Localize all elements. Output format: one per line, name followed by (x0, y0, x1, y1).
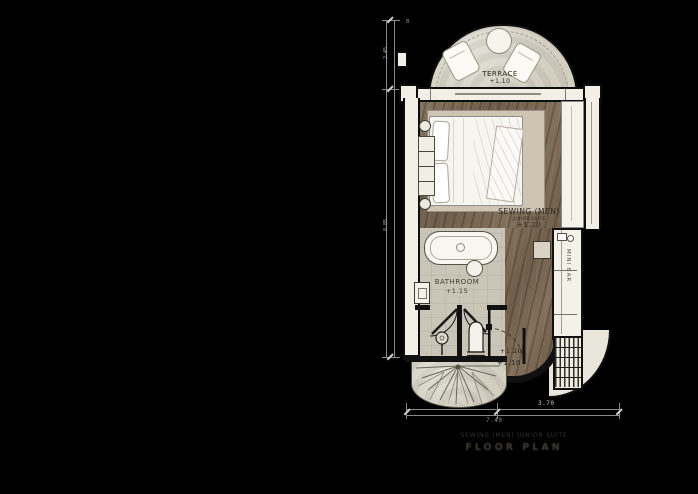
bedside-console (418, 136, 435, 196)
console-divider (419, 166, 434, 167)
toilet-icon (469, 322, 483, 352)
room-label: SEWING (MEN) (488, 207, 570, 216)
console-divider (419, 151, 434, 152)
chair-fold-line (518, 52, 533, 61)
door-leaf (432, 309, 457, 334)
left-dimension-tick-mid (382, 89, 400, 90)
stairs-icon (553, 336, 583, 390)
bottom-dimension-line-lower (406, 415, 620, 416)
basin-icon (466, 260, 483, 277)
bathroom-level: +1.15 (422, 287, 492, 295)
stair-step (555, 348, 581, 358)
left-dimension-end-bottom (382, 357, 400, 358)
bottom-dim-value-1: 3.70 (438, 400, 454, 407)
door-jamb (486, 324, 492, 330)
left-dim-value-1: 2.45 (383, 47, 389, 59)
bottom-dim-total: 7.40 (486, 417, 502, 424)
caption-line-2: FLOOR PLAN (400, 442, 628, 453)
bathroom-label: BATHROOM (422, 278, 492, 286)
palm-trunk (456, 365, 461, 370)
entry-level-lower: +1.10 (490, 359, 528, 367)
bathtub-drain (456, 243, 465, 252)
stair-step (555, 358, 581, 368)
top-wall (403, 87, 600, 102)
chair-fold-line (449, 50, 464, 59)
window-seat-line (571, 106, 572, 221)
bottom-dim-value-2: 3.70 (538, 400, 554, 407)
lamp-icon (419, 120, 431, 132)
caption-line-1: SEWING (MEN) JUNIOR SUITE (408, 432, 620, 439)
floor-plan-canvas: 2.45 8.85 B TERRACE +1.10 (0, 0, 698, 494)
grid-marker: B (406, 19, 409, 25)
right-wall (584, 98, 601, 229)
cup-icon (567, 235, 574, 242)
kettle-icon (557, 233, 567, 241)
door-mullion (457, 305, 462, 356)
counter-divider (554, 314, 577, 315)
sheet-line (463, 119, 464, 203)
terrace-label: TERRACE (468, 70, 532, 78)
shower-icon (436, 332, 448, 344)
left-dimension-line-inner (394, 20, 395, 358)
exterior-post (397, 52, 407, 67)
minibar-label: MINI BAR (557, 244, 571, 288)
window-inner-line (591, 102, 592, 224)
left-dimension-line-outer (386, 20, 387, 358)
bed (429, 116, 523, 206)
wall-stub (487, 305, 507, 310)
lamp-icon (419, 198, 431, 210)
bathtub-icon (424, 231, 498, 265)
terrace-level: +1.10 (468, 78, 532, 85)
garden-court (411, 360, 507, 408)
bottom-dimension-line-upper (406, 409, 620, 410)
left-dim-value-2: 8.85 (383, 219, 389, 231)
stair-step (555, 338, 581, 348)
entry-level-upper: +1.20 (492, 347, 530, 355)
stair-step (555, 378, 581, 387)
round-table-icon (486, 28, 512, 54)
wall-stub (415, 305, 430, 310)
side-table (533, 241, 551, 259)
palm-plant-icon (412, 360, 506, 407)
stair-step (555, 368, 581, 378)
console-divider (419, 181, 434, 182)
window-mullion (430, 89, 431, 100)
window-mullion (565, 89, 566, 100)
left-dimension-end-top (382, 20, 400, 21)
sheet-line (453, 119, 454, 203)
sliding-door-line (455, 93, 541, 95)
